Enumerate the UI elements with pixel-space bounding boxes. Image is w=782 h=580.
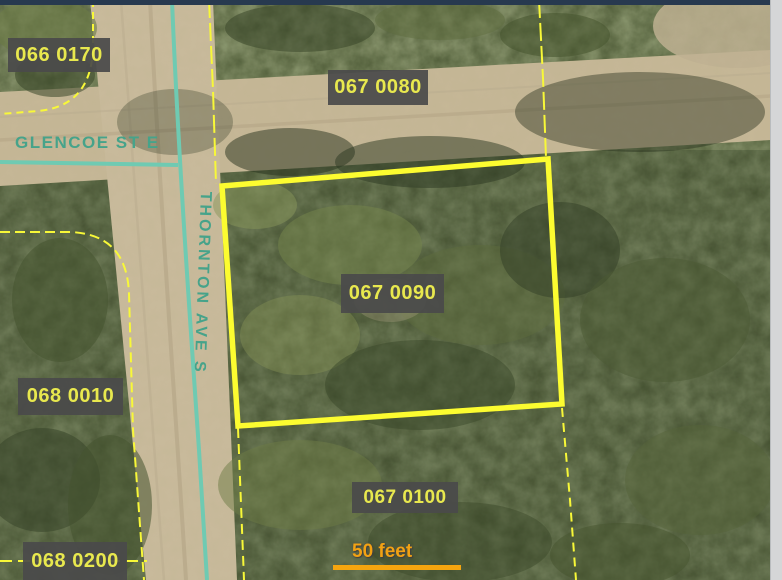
parcel-label-067-0090[interactable]: 067 0090: [341, 274, 444, 313]
parcel-id-text: 067 0100: [363, 487, 446, 509]
parcel-id-text: 068 0200: [31, 550, 118, 573]
scrollbar-track[interactable]: [770, 0, 782, 580]
parcel-id-text: 067 0080: [334, 76, 421, 99]
street-label-glencoe: GLENCOE ST E: [15, 133, 160, 153]
parcel-label-067-0080[interactable]: 067 0080: [328, 70, 428, 105]
parcel-label-068-0200[interactable]: 068 0200: [23, 542, 127, 580]
parcel-label-067-0100[interactable]: 067 0100: [352, 482, 458, 513]
parcel-id-text: 068 0010: [27, 385, 114, 408]
parcel-label-066-0170[interactable]: 066 0170: [8, 38, 110, 72]
window-top-edge: [0, 0, 782, 5]
parcel-label-068-0010[interactable]: 068 0010: [18, 378, 123, 415]
map-viewport[interactable]: 066 0170 067 0080 067 0090 068 0010 067 …: [0, 0, 782, 580]
parcel-id-text: 067 0090: [349, 282, 436, 305]
parcel-id-text: 066 0170: [15, 44, 102, 67]
scale-bar-label: 50 feet: [352, 541, 412, 563]
scale-bar: [333, 565, 461, 570]
